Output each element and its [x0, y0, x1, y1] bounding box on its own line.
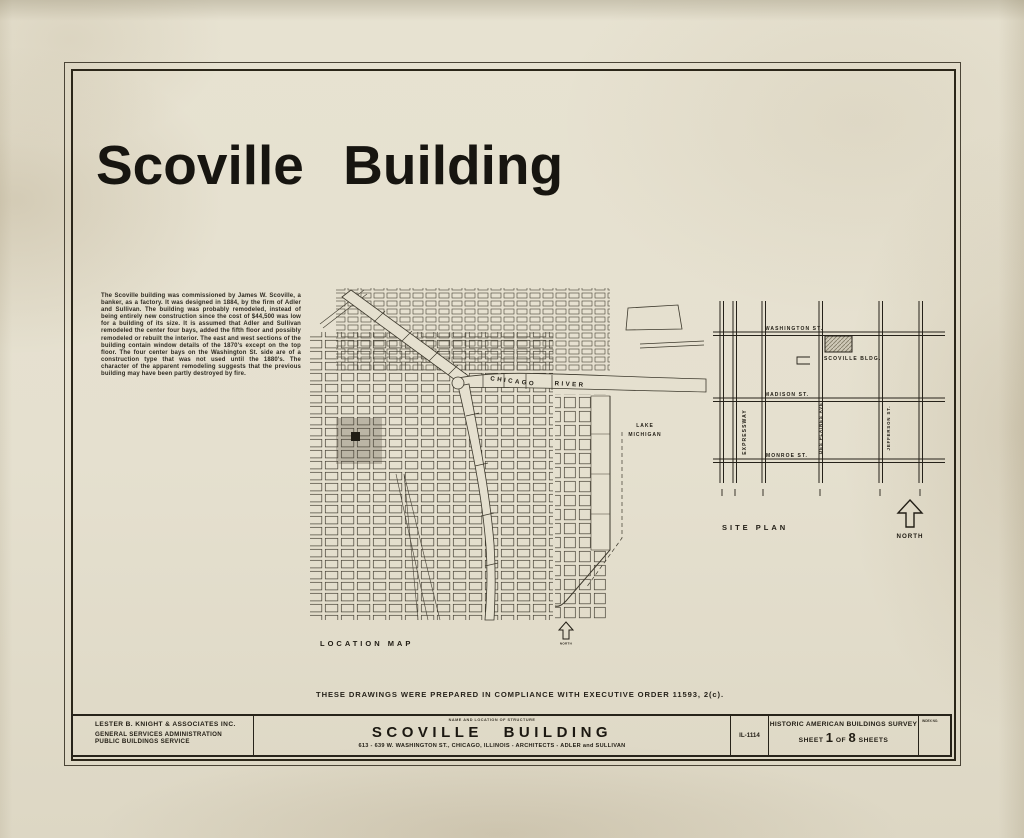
location-map-caption: LOCATION MAP — [320, 639, 413, 648]
survey-number: IL-1114 — [739, 732, 760, 739]
north-arrow-icon — [559, 622, 573, 639]
north-arrow-icon — [898, 500, 922, 527]
sheet-word: SHEET — [799, 737, 824, 744]
grant-park — [591, 396, 610, 550]
agency-line1: GENERAL SERVICES ADMINISTRATION — [95, 731, 253, 738]
location-map: CHICAGO RIVER LAKE MICHIGAN — [308, 284, 708, 630]
street-label-jefferson: JEFFERSON ST. — [886, 406, 891, 451]
location-map-north-label: NORTH — [560, 642, 572, 646]
compliance-note: THESE DRAWINGS WERE PREPARED IN COMPLIAN… — [310, 690, 730, 699]
sheets-word: SHEETS — [859, 737, 889, 744]
scoville-building-marker — [336, 418, 382, 464]
sheet-number: 1 — [826, 730, 834, 745]
street-stubs — [722, 489, 920, 496]
sheet-count-line: SHEET 1 OF 8 SHEETS — [769, 730, 918, 745]
of-word: OF — [836, 737, 846, 744]
site-plan-north-label: NORTH — [897, 533, 924, 540]
street-label-expressway: EXPRESSWAY — [742, 409, 748, 455]
lake-label-line1: LAKE — [636, 423, 654, 429]
site-plan-north-arrow: NORTH — [895, 497, 925, 541]
lake-label-line2: MICHIGAN — [628, 432, 661, 438]
site-plan-caption: SITE PLAN — [722, 523, 788, 532]
survey-name-cell: HISTORIC AMERICAN BUILDINGS SURVEY SHEET… — [769, 716, 919, 755]
block-notch — [797, 357, 810, 364]
structure-label: NAME AND LOCATION OF STRUCTURE — [254, 718, 730, 722]
structure-name: SCOVILLE BUILDING — [254, 724, 730, 741]
navy-pier — [626, 305, 704, 348]
structure-address: 613 - 639 W. WASHINGTON ST., CHICAGO, IL… — [254, 743, 730, 749]
index-label: INDEX NO. — [922, 719, 938, 723]
agency-line2: PUBLIC BUILDINGS SERVICE — [95, 738, 253, 745]
building-description: The Scoville building was commissioned b… — [101, 293, 301, 378]
street-label-monroe: MONROE ST. — [766, 453, 808, 459]
survey-name: HISTORIC AMERICAN BUILDINGS SURVEY — [769, 721, 918, 728]
street-label-des-plaines: DES PLAINES AVE. — [818, 400, 823, 454]
site-plan-building-footprint — [825, 336, 852, 352]
site-plan-building-label: SCOVILLE BLDG. — [824, 356, 881, 362]
index-number-cell: INDEX NO. — [919, 716, 948, 755]
total-sheets: 8 — [849, 730, 857, 745]
title-block: LESTER B. KNIGHT & ASSOCIATES INC. GENER… — [71, 714, 952, 757]
street-label-washington: WASHINGTON ST. — [765, 326, 823, 332]
firm-name: LESTER B. KNIGHT & ASSOCIATES INC. — [95, 721, 253, 728]
page-title: Scoville Building — [96, 133, 696, 197]
title-block-firm-cell: LESTER B. KNIGHT & ASSOCIATES INC. GENER… — [73, 716, 254, 755]
street-label-madison: MADISON ST. — [765, 392, 809, 398]
title-block-structure-cell: NAME AND LOCATION OF STRUCTURE SCOVILLE … — [254, 716, 731, 755]
survey-number-cell: IL-1114 — [731, 716, 769, 755]
location-map-north-arrow: NORTH — [556, 620, 576, 646]
